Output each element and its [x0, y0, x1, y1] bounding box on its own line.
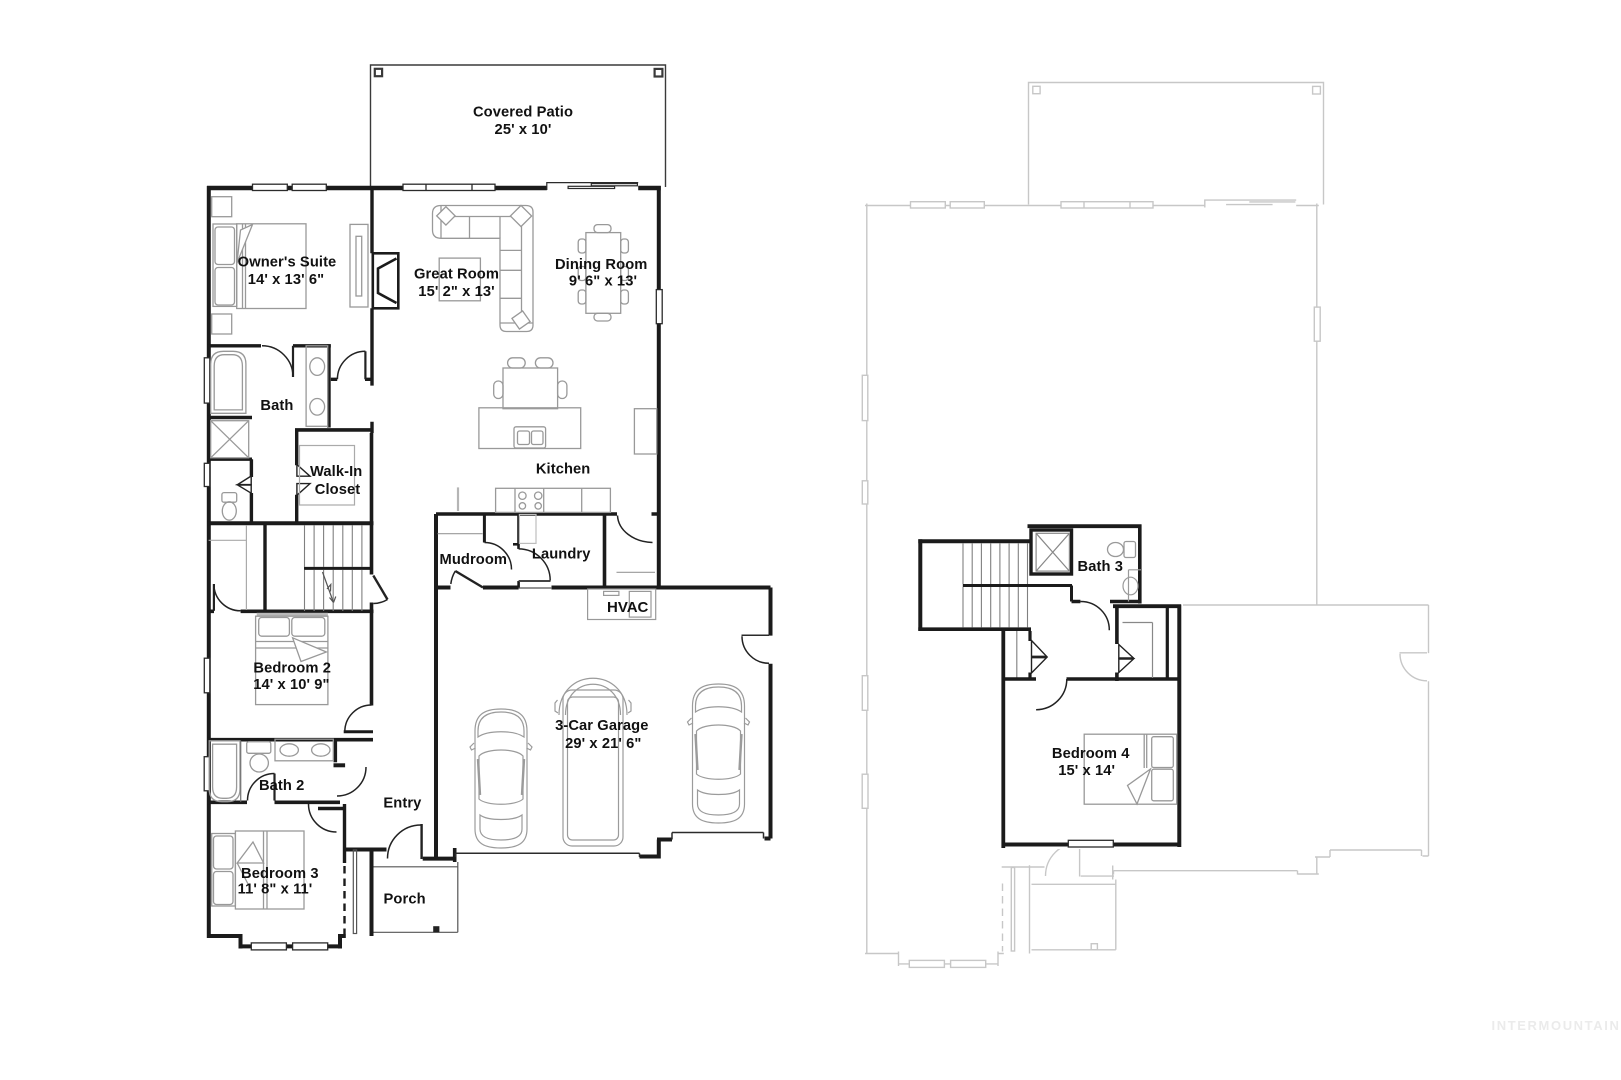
svg-text:HVAC: HVAC — [607, 599, 649, 616]
svg-text:Dining Room: Dining Room — [555, 257, 647, 273]
svg-text:Mudroom: Mudroom — [439, 552, 507, 568]
svg-text:Bedroom 3: Bedroom 3 — [241, 866, 319, 882]
svg-text:11' 8" x 11': 11' 8" x 11' — [238, 881, 313, 897]
svg-text:INTERMOUNTAIN: INTERMOUNTAIN — [1492, 1018, 1621, 1033]
svg-text:29' x 21' 6": 29' x 21' 6" — [565, 736, 641, 752]
svg-text:Walk-In: Walk-In — [310, 464, 362, 480]
svg-text:15' x 14': 15' x 14' — [1058, 763, 1115, 779]
svg-text:Bath 3: Bath 3 — [1078, 559, 1124, 575]
svg-text:Bedroom 4: Bedroom 4 — [1052, 746, 1130, 762]
svg-text:Closet: Closet — [315, 482, 361, 498]
svg-text:Kitchen: Kitchen — [536, 462, 591, 478]
svg-text:Covered Patio: Covered Patio — [473, 105, 573, 121]
svg-text:Bedroom 2: Bedroom 2 — [253, 660, 331, 676]
svg-text:Porch: Porch — [384, 891, 426, 907]
svg-text:3-Car Garage: 3-Car Garage — [555, 718, 648, 734]
svg-text:Bath: Bath — [260, 398, 293, 414]
svg-text:14' x 10' 9": 14' x 10' 9" — [253, 677, 329, 693]
svg-text:15' 2" x 13': 15' 2" x 13' — [418, 284, 494, 300]
svg-text:14' x 13' 6": 14' x 13' 6" — [248, 272, 324, 288]
svg-text:Owner's Suite: Owner's Suite — [238, 255, 337, 271]
svg-text:Entry: Entry — [383, 796, 422, 812]
svg-text:25' x 10': 25' x 10' — [495, 122, 552, 138]
svg-text:Great Room: Great Room — [414, 267, 499, 283]
svg-text:Bath 2: Bath 2 — [259, 778, 305, 794]
svg-text:9' 6" x 13': 9' 6" x 13' — [569, 274, 637, 290]
svg-text:Laundry: Laundry — [532, 547, 591, 563]
